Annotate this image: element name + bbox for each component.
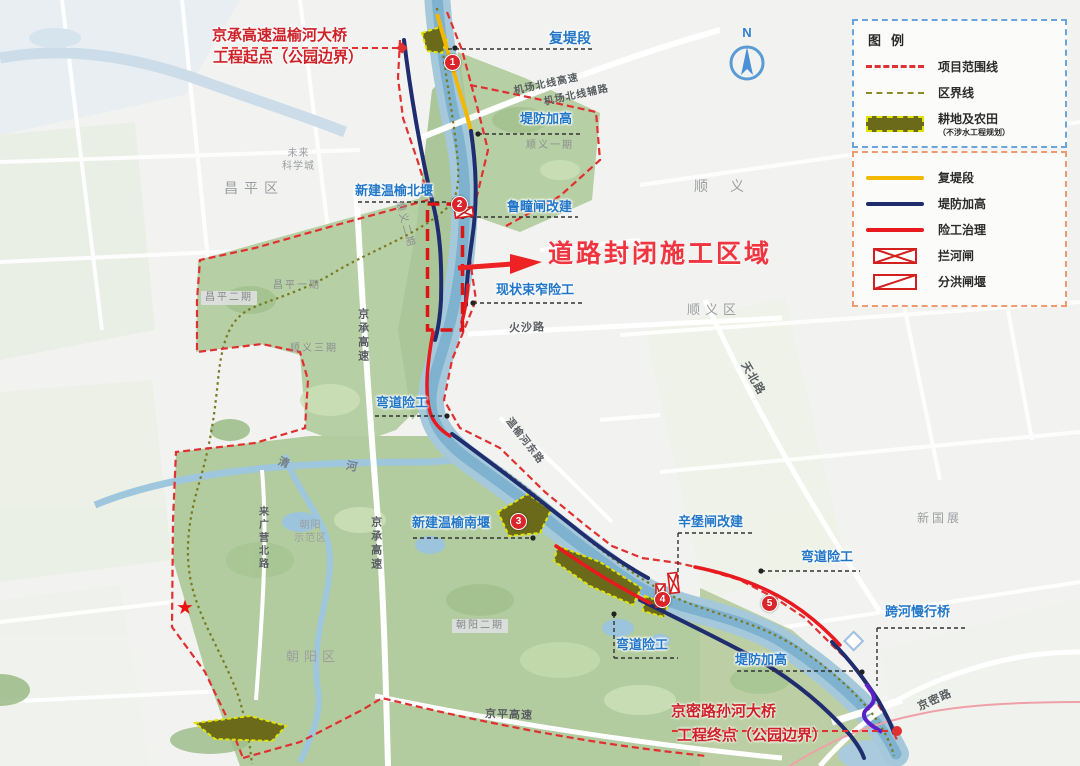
closure-annotation: 道路封闭施工区域 (548, 240, 772, 269)
legend-item-project-boundary: 项目范围线 (866, 58, 1055, 75)
marker-4: 4 (654, 591, 671, 608)
legend-item-farmland: 耕地及农田 （不涉水工程规划） (866, 110, 1055, 138)
legend-item-label: 险工治理 (938, 221, 986, 238)
legend-item-risk-treatment: 险工治理 (866, 221, 1055, 238)
region-label-xinguozhan: 新国展 (917, 512, 962, 526)
road-label-jingcheng-expwy-south: 京承高速 (369, 516, 382, 572)
region-label-shunyi-phase3: 顺义三期 (290, 343, 338, 355)
diversion-weir-icon (866, 274, 924, 290)
feature-label-difangjiagao-bottom: 堤防加高 (735, 653, 787, 668)
road-label-jingcheng-expwy-north: 京承高速 (356, 308, 369, 364)
compass-icon (725, 39, 769, 83)
feature-label-xinbu-gate: 辛堡闸改建 (678, 515, 743, 530)
end-annotation-line2: 工程终点（公园边界） (677, 727, 827, 744)
region-label-changping-phase2: 昌平二期 (201, 291, 257, 305)
feature-label-footbridge: 跨河慢行桥 (885, 605, 950, 620)
farmland-swatch (866, 116, 924, 132)
region-label-line: 未来 (282, 148, 315, 161)
feature-label-lutuan-gate: 鲁疃闸改建 (507, 200, 572, 215)
legend-item-label: 复堤段 (938, 169, 974, 186)
feature-label-north-weir: 新建温榆北堰 (355, 184, 433, 199)
legend-item-label: 耕地及农田 (938, 112, 998, 126)
region-label-shunyi-phase1: 顺义一期 (526, 140, 574, 152)
road-label-huosha: 火沙路 (509, 321, 545, 335)
marker-2: 2 (451, 196, 468, 213)
feature-label-difangjiagao-top: 堤防加高 (520, 112, 572, 127)
dike-raising-swatch (866, 202, 924, 206)
region-label-line: 朝阳 (294, 520, 327, 533)
region-label-shunyiqu: 顺义区 (687, 303, 741, 318)
barrage-gate-icon (866, 248, 924, 264)
legend-item-district-boundary: 区界线 (866, 84, 1055, 101)
region-label-chaoyang-demo: 朝阳 示范区 (294, 520, 327, 545)
feature-label-bend-risk-west: 弯道险工 (376, 396, 428, 411)
start-annotation-line1: 京承高速温榆河大桥 (212, 27, 347, 44)
re-embankment-swatch (866, 176, 924, 180)
start-annotation-line2: 工程起点（公园边界） (213, 49, 363, 66)
region-label-changping: 昌平区 (224, 180, 284, 196)
feature-label-fudiduan: 复堤段 (549, 30, 591, 46)
road-label-jingping-expwy: 京平高速 (485, 708, 533, 722)
legend: 图例 项目范围线 区界线 耕地及农田 （不涉水工程规划） 复堤段 (852, 19, 1067, 307)
legend-item-label: 分洪闸堰 (938, 273, 986, 290)
legend-works-section: 复堤段 堤防加高 险工治理 拦河闸 分洪闸堰 (852, 151, 1067, 307)
marker-1: 1 (444, 54, 461, 71)
marker-5: 5 (761, 595, 778, 612)
legend-item-label: 项目范围线 (938, 58, 998, 75)
compass-n-label: N (723, 26, 771, 39)
project-boundary-swatch (866, 65, 924, 68)
project-map: 京承高速温榆河大桥 工程起点（公园边界） 道路封闭施工区域 京密路孙河大桥 工程… (0, 0, 1080, 766)
district-boundary-swatch (866, 92, 924, 94)
legend-item-diversion-weir: 分洪闸堰 (866, 273, 1055, 290)
legend-item-dike-raising: 堤防加高 (866, 195, 1055, 212)
feature-label-narrow-risk: 现状束窄险工 (496, 283, 574, 298)
region-label-shunyi: 顺义 (694, 178, 766, 194)
legend-item-barrage-gate: 拦河闸 (866, 247, 1055, 264)
marker-3: 3 (510, 513, 527, 530)
feature-label-south-weir: 新建温榆南堰 (412, 516, 490, 531)
region-label-changping-phase1: 昌平一期 (273, 280, 321, 292)
road-label-laiguangying: 来广营北路 (256, 506, 268, 571)
end-annotation-line1: 京密路孙河大桥 (671, 703, 776, 720)
compass: N (723, 26, 771, 84)
star-icon: ★ (176, 598, 194, 618)
feature-label-bend-risk-ne: 弯道险工 (801, 550, 853, 565)
legend-boundary-section: 图例 项目范围线 区界线 耕地及农田 （不涉水工程规划） (852, 19, 1067, 148)
feature-label-bend-risk-south: 弯道险工 (616, 638, 668, 653)
region-label-chaoyang: 朝阳区 (286, 650, 340, 665)
legend-item-note: （不涉水工程规划） (938, 127, 1010, 138)
region-label-future-science-city: 未来 科学城 (282, 148, 315, 173)
legend-title: 图例 (868, 30, 1055, 49)
legend-item-label: 拦河闸 (938, 247, 974, 264)
legend-item-label: 区界线 (938, 84, 974, 101)
region-label-line: 科学城 (282, 161, 315, 174)
risk-treatment-swatch (866, 228, 924, 232)
legend-item-re-embankment: 复堤段 (866, 169, 1055, 186)
legend-item-label: 堤防加高 (938, 195, 986, 212)
region-label-line: 示范区 (294, 533, 327, 546)
region-label-chaoyang-phase2: 朝阳二期 (452, 619, 508, 633)
